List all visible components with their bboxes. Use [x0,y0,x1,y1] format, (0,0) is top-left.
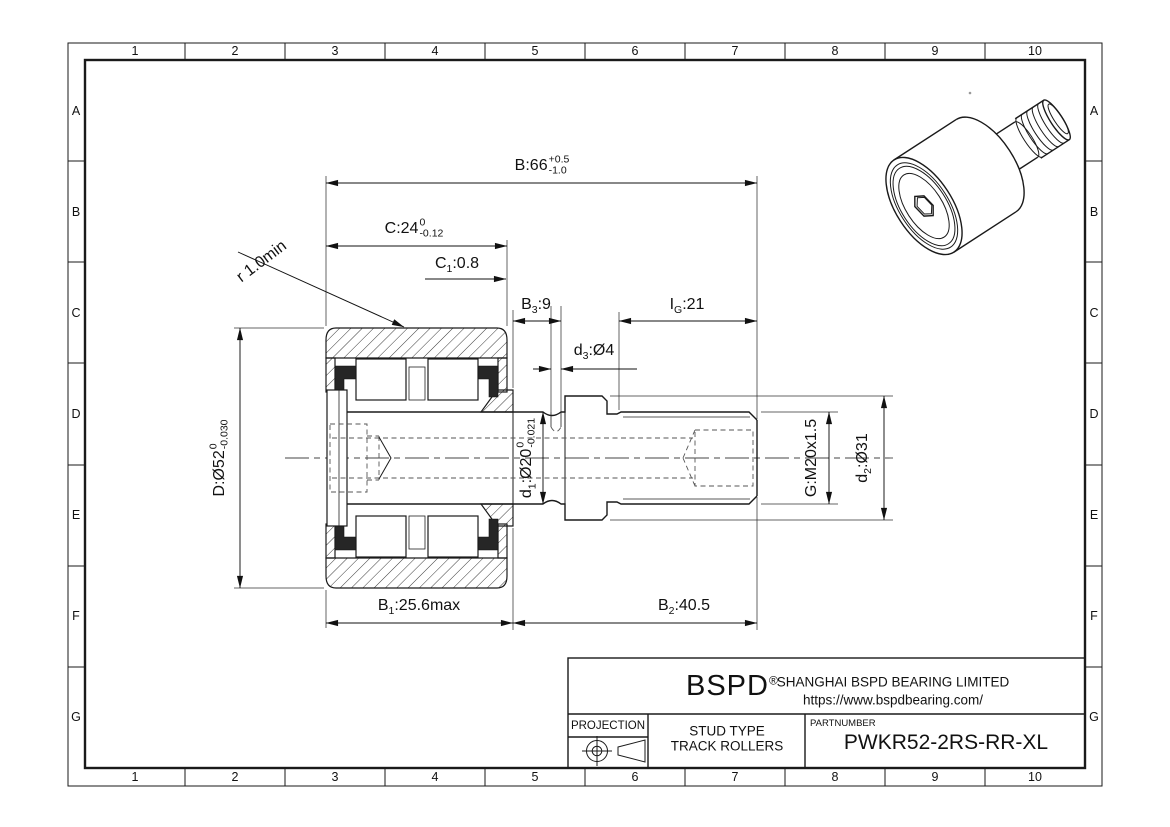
grid-band-top: 12345678910 [85,42,1085,60]
dim-label-B3: B3:9 [521,297,551,313]
grid-label: F [67,566,85,667]
grid-label: 7 [685,42,785,60]
grid-label: 9 [885,42,985,60]
dim-label-C1: C1:0.8 [435,256,479,272]
dim-label-D: D:Ø520-0.030 [209,419,230,496]
bearing-cross-section [234,176,893,630]
dim-label-G: G:M20x1.5 [804,419,820,497]
dim-label-d3: d3:Ø4 [574,343,615,359]
projection-label: PROJECTION [571,720,645,732]
grid-label: 6 [585,42,685,60]
dim-label-C: C:240-0.12 [385,218,444,239]
grid-label: 8 [785,768,885,786]
partnumber-label: PARTNUMBER [810,718,876,729]
company-name: SHANGHAI BSPD BEARING LIMITED [777,675,1010,690]
grid-label: 4 [385,768,485,786]
grid-label: 7 [685,768,785,786]
grid-label: B [67,161,85,262]
dim-label-d2: d2:Ø31 [855,433,871,482]
grid-label: 9 [885,768,985,786]
company-logo: BSPD® [686,670,779,703]
dim-label-B1: B1:25.6max [378,598,460,614]
partnumber-value: PWKR52-2RS-RR-XL [844,731,1048,755]
grid-label: 6 [585,768,685,786]
dim-label-IG: IG:21 [670,297,705,313]
grid-band-left: ABCDEFG [67,60,85,768]
grid-label: D [67,363,85,464]
product-type-line2: TRACK ROLLERS [671,739,784,754]
grid-label: G [1085,667,1103,768]
grid-label: 5 [485,42,585,60]
grid-label: A [1085,60,1103,161]
bearing-3d-view [871,70,1092,267]
grid-label: E [67,465,85,566]
grid-label: 3 [285,768,385,786]
end-washer [327,390,347,526]
grid-band-right: ABCDEFG [1085,60,1103,768]
dim-label-B: B:66+0.5-1.0 [515,155,570,176]
dim-label-d1: d1:Ø200-0.021 [516,418,537,498]
grid-label: B [1085,161,1103,262]
grid-label: G [67,667,85,768]
dim-label-B2: B2:40.5 [658,598,710,614]
product-type-line1: STUD TYPE [689,724,765,739]
grid-label: A [67,60,85,161]
grid-label: 1 [85,768,185,786]
company-website: https://www.bspdbearing.com/ [803,693,983,708]
grid-label: E [1085,465,1103,566]
grid-label: C [1085,262,1103,363]
grid-label: 10 [985,768,1085,786]
grid-label: 8 [785,42,885,60]
grid-label: C [67,262,85,363]
grid-label: 1 [85,42,185,60]
grid-label: 5 [485,768,585,786]
grid-band-bottom: 12345678910 [85,768,1085,786]
grid-label: 3 [285,42,385,60]
grid-label: 10 [985,42,1085,60]
first-angle-projection-icon [582,736,645,766]
grid-label: D [1085,363,1103,464]
grid-label: 2 [185,42,285,60]
drawing-canvas [0,0,1170,827]
engineering-drawing-page: 12345678910 12345678910 ABCDEFG ABCDEFG … [0,0,1170,827]
grid-label: F [1085,566,1103,667]
grid-label: 2 [185,768,285,786]
grid-label: 4 [385,42,485,60]
